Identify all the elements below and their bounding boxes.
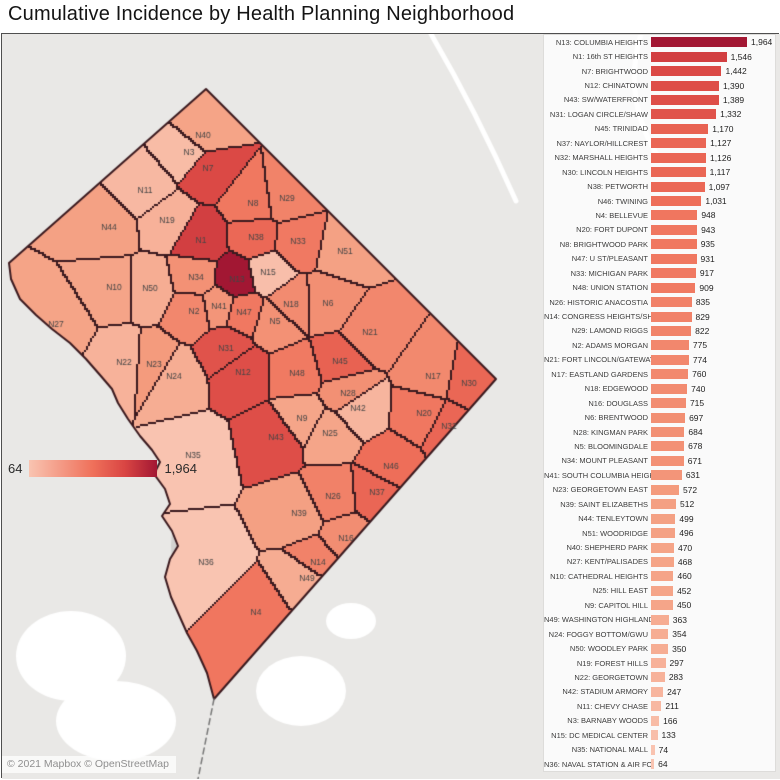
bar[interactable] (651, 759, 654, 769)
bar-row[interactable]: N29: LAMOND RIGGS822 (544, 324, 775, 338)
bar[interactable] (651, 37, 747, 47)
bar[interactable] (651, 413, 685, 423)
bar[interactable] (651, 167, 706, 177)
bar-value: 512 (680, 499, 694, 509)
bar-row[interactable]: N20: FORT DUPONT943 (544, 223, 775, 237)
bar-value: 671 (688, 456, 702, 466)
bar-label: N6: BRENTWOOD (544, 413, 651, 422)
bar[interactable] (651, 95, 719, 105)
bar-value: 684 (688, 427, 702, 437)
bar-label: N15: DC MEDICAL CENTER (544, 731, 651, 740)
bar[interactable] (651, 730, 658, 740)
bar-label: N20: FORT DUPONT (544, 225, 651, 234)
bar-label: N49: WASHINGTON HIGHLANDS (544, 615, 651, 624)
bar[interactable] (651, 369, 688, 379)
bar-row[interactable]: N30: LINCOLN HEIGHTS1,117 (544, 165, 775, 179)
bar[interactable] (651, 441, 684, 451)
bar-value: 948 (701, 210, 715, 220)
bar-row[interactable]: N13: COLUMBIA HEIGHTS1,964 (544, 35, 775, 49)
bar[interactable] (651, 470, 682, 480)
bar-value: 1,546 (731, 52, 752, 62)
bar[interactable] (651, 456, 684, 466)
bar-label: N3: BARNABY WOODS (544, 716, 651, 725)
bar-value: 354 (672, 629, 686, 639)
bar[interactable] (651, 629, 668, 639)
bar[interactable] (651, 239, 697, 249)
bar-label: N11: CHEVY CHASE (544, 702, 651, 711)
bar[interactable] (651, 586, 673, 596)
bar-value: 943 (701, 225, 715, 235)
bar-row[interactable]: N48: UNION STATION909 (544, 280, 775, 294)
bar-value: 909 (699, 283, 713, 293)
bar-value: 1,332 (720, 109, 741, 119)
bar-label: N2: ADAMS MORGAN (544, 341, 651, 350)
bar-label: N22: GEORGETOWN (544, 673, 651, 682)
legend-min-label: 64 (8, 461, 22, 476)
bar-row[interactable]: N6: BRENTWOOD697 (544, 410, 775, 424)
bar-label: N4: BELLEVUE (544, 211, 651, 220)
bar-value: 931 (701, 254, 715, 264)
bar-row[interactable]: N32: MARSHALL HEIGHTS1,126 (544, 151, 775, 165)
bar-row[interactable]: N14: CONGRESS HEIGHTS/SHI..829 (544, 309, 775, 323)
bar-label: N45: TRINIDAD (544, 124, 651, 133)
bar-label: N32: MARSHALL HEIGHTS (544, 153, 651, 162)
bar-label: N12: CHINATOWN (544, 81, 651, 90)
bar-label: N35: NATIONAL MALL (544, 745, 651, 754)
bar-row[interactable]: N40: SHEPHERD PARK470 (544, 540, 775, 554)
bar[interactable] (651, 427, 684, 437)
bar-row[interactable]: N37: NAYLOR/HILLCREST1,127 (544, 136, 775, 150)
page-title: Cumulative Incidence by Health Planning … (8, 3, 514, 26)
bar[interactable] (651, 283, 695, 293)
bar-label: N39: SAINT ELIZABETHS (544, 500, 651, 509)
bar-row[interactable]: N5: BLOOMINGDALE678 (544, 439, 775, 453)
bar-row[interactable]: N4: BELLEVUE948 (544, 208, 775, 222)
bar-value: 822 (695, 326, 709, 336)
bar-label: N26: HISTORIC ANACOSTIA (544, 298, 651, 307)
bar-row[interactable]: N39: SAINT ELIZABETHS512 (544, 497, 775, 511)
bar-label: N38: PETWORTH (544, 182, 651, 191)
bar-row[interactable]: N15: DC MEDICAL CENTER133 (544, 728, 775, 742)
bar[interactable] (651, 66, 721, 76)
bar-value: 1,031 (705, 196, 726, 206)
bar-row[interactable]: N47: U ST/PLEASANT931 (544, 252, 775, 266)
bar-label: N46: TWINING (544, 197, 651, 206)
bar[interactable] (651, 485, 679, 495)
bar-value: 211 (665, 701, 679, 711)
bar-row[interactable]: N9: CAPITOL HILL450 (544, 598, 775, 612)
bar-row[interactable]: N22: GEORGETOWN283 (544, 670, 775, 684)
bar-value: 917 (700, 268, 714, 278)
bar[interactable] (651, 326, 691, 336)
bar-label: N28: KINGMAN PARK (544, 428, 651, 437)
bar-row[interactable]: N24: FOGGY BOTTOM/GWU354 (544, 627, 775, 641)
bar-row[interactable]: N19: FOREST HILLS297 (544, 656, 775, 670)
bar[interactable] (651, 268, 696, 278)
bar-row[interactable]: N23: GEORGETOWN EAST572 (544, 483, 775, 497)
bar-value: 166 (663, 716, 677, 726)
bar-value: 1,442 (725, 66, 746, 76)
bar-row[interactable]: N2: ADAMS MORGAN775 (544, 338, 775, 352)
bar-label: N34: MOUNT PLEASANT (544, 456, 651, 465)
bar-value: 363 (673, 615, 687, 625)
bar[interactable] (651, 716, 659, 726)
bar-row[interactable]: N36: NAVAL STATION & AIR FO..64 (544, 757, 775, 771)
bar-label: N1: 16th ST HEIGHTS (544, 52, 651, 61)
bar-row[interactable]: N12: CHINATOWN1,390 (544, 78, 775, 92)
map-attribution: © 2021 Mapbox © OpenStreetMap (2, 756, 176, 773)
bar-label: N40: SHEPHERD PARK (544, 543, 651, 552)
bar-chart-panel: N13: COLUMBIA HEIGHTS1,964N1: 16th ST HE… (543, 34, 776, 772)
bar-row[interactable]: N45: TRINIDAD1,170 (544, 122, 775, 136)
bar-value: 468 (678, 557, 692, 567)
bar-value: 64 (658, 759, 667, 769)
bar[interactable] (651, 312, 692, 322)
bar[interactable] (651, 658, 666, 668)
bar[interactable] (651, 672, 665, 682)
bar-value: 499 (679, 514, 693, 524)
bar-value: 829 (696, 312, 710, 322)
bar-value: 470 (678, 543, 692, 553)
bar-row[interactable]: N8: BRIGHTWOOD PARK935 (544, 237, 775, 251)
bar-label: N48: UNION STATION (544, 283, 651, 292)
bar-label: N13: COLUMBIA HEIGHTS (544, 38, 651, 47)
bar-label: N7: BRIGHTWOOD (544, 67, 651, 76)
bar[interactable] (651, 514, 675, 524)
bar-label: N8: BRIGHTWOOD PARK (544, 240, 651, 249)
bar-label: N10: CATHEDRAL HEIGHTS (544, 572, 651, 581)
bar[interactable] (651, 384, 687, 394)
bar-value: 835 (696, 297, 710, 307)
bar-row[interactable]: N7: BRIGHTWOOD1,442 (544, 64, 775, 78)
bar[interactable] (651, 615, 669, 625)
bar-row[interactable]: N35: NATIONAL MALL74 (544, 742, 775, 756)
bar[interactable] (651, 297, 692, 307)
bar-value: 297 (670, 658, 684, 668)
bar-value: 133 (662, 730, 676, 740)
legend-gradient (29, 460, 157, 477)
bar-label: N44: TENLEYTOWN (544, 514, 651, 523)
bar[interactable] (651, 81, 719, 91)
bar-row[interactable]: N50: WOODLEY PARK350 (544, 641, 775, 655)
bar-label: N23: GEORGETOWN EAST (544, 485, 651, 494)
bar-label: N9: CAPITOL HILL (544, 601, 651, 610)
bar[interactable] (651, 210, 697, 220)
bar-row[interactable]: N49: WASHINGTON HIGHLANDS363 (544, 613, 775, 627)
bar-row[interactable]: N10: CATHEDRAL HEIGHTS460 (544, 569, 775, 583)
bar-value: 283 (669, 672, 683, 682)
bar[interactable] (651, 745, 655, 755)
bar-label: N21: FORT LINCOLN/GATEWAY (544, 355, 651, 364)
bar-row[interactable]: N26: HISTORIC ANACOSTIA835 (544, 295, 775, 309)
bar-label: N29: LAMOND RIGGS (544, 326, 651, 335)
bar[interactable] (651, 182, 705, 192)
bar-row[interactable]: N18: EDGEWOOD740 (544, 382, 775, 396)
bar[interactable] (651, 340, 689, 350)
bar-row[interactable]: N28: KINGMAN PARK684 (544, 425, 775, 439)
bar-label: N18: EDGEWOOD (544, 384, 651, 393)
bar-row[interactable]: N21: FORT LINCOLN/GATEWAY774 (544, 353, 775, 367)
bar-value: 715 (690, 398, 704, 408)
bar-value: 678 (688, 441, 702, 451)
bar-value: 452 (677, 586, 691, 596)
bar-value: 774 (693, 355, 707, 365)
bar-value: 1,117 (710, 167, 731, 177)
bar-row[interactable]: N25: HILL EAST452 (544, 584, 775, 598)
bar[interactable] (651, 109, 716, 119)
bar-value: 350 (672, 644, 686, 654)
bar-value: 450 (677, 600, 691, 610)
bar[interactable] (651, 52, 727, 62)
bar[interactable] (651, 687, 663, 697)
bar-row[interactable]: N11: CHEVY CHASE211 (544, 699, 775, 713)
bar-row[interactable]: N38: PETWORTH1,097 (544, 179, 775, 193)
bar-label: N41: SOUTH COLUMBIA HEIGHT.. (544, 471, 651, 480)
bar[interactable] (651, 124, 708, 134)
bar[interactable] (651, 571, 673, 581)
bar-value: 1,170 (712, 124, 733, 134)
bar-value: 935 (701, 239, 715, 249)
bar[interactable] (651, 701, 661, 711)
bar[interactable] (651, 225, 697, 235)
bar-label: N24: FOGGY BOTTOM/GWU (544, 630, 651, 639)
bar-label: N31: LOGAN CIRCLE/SHAW (544, 110, 651, 119)
bar-row[interactable]: N51: WOODRIDGE496 (544, 526, 775, 540)
bar-label: N50: WOODLEY PARK (544, 644, 651, 653)
legend-max-label: 1,964 (164, 461, 197, 476)
bar-label: N25: HILL EAST (544, 586, 651, 595)
bar[interactable] (651, 398, 686, 408)
bar-value: 1,127 (710, 138, 731, 148)
bar-label: N51: WOODRIDGE (544, 529, 651, 538)
bar-value: 572 (683, 485, 697, 495)
bar-value: 1,389 (723, 95, 744, 105)
bar-row[interactable]: N1: 16th ST HEIGHTS1,546 (544, 49, 775, 63)
bar-label: N43: SW/WATERFRONT (544, 95, 651, 104)
bar-label: N37: NAYLOR/HILLCREST (544, 139, 651, 148)
bar[interactable] (651, 254, 697, 264)
bar-label: N33: MICHIGAN PARK (544, 269, 651, 278)
bar-row[interactable]: N44: TENLEYTOWN499 (544, 511, 775, 525)
bar-row[interactable]: N42: STADIUM ARMORY247 (544, 685, 775, 699)
bar-label: N16: DOUGLASS (544, 399, 651, 408)
bar-row[interactable]: N3: BARNABY WOODS166 (544, 714, 775, 728)
bar-row[interactable]: N33: MICHIGAN PARK917 (544, 266, 775, 280)
bar-value: 1,964 (751, 37, 772, 47)
bar-value: 775 (693, 340, 707, 350)
bar-label: N42: STADIUM ARMORY (544, 687, 651, 696)
bar[interactable] (651, 600, 673, 610)
bar-value: 1,390 (723, 81, 744, 91)
bar-row[interactable]: N27: KENT/PALISADES468 (544, 555, 775, 569)
bar-row[interactable]: N17: EASTLAND GARDENS760 (544, 367, 775, 381)
bar[interactable] (651, 196, 701, 206)
bar-value: 760 (692, 369, 706, 379)
bar[interactable] (651, 528, 675, 538)
bar[interactable] (651, 499, 676, 509)
bar-row[interactable]: N43: SW/WATERFRONT1,389 (544, 93, 775, 107)
bar[interactable] (651, 355, 689, 365)
bar-row[interactable]: N46: TWINING1,031 (544, 194, 775, 208)
bar-value: 1,097 (709, 182, 730, 192)
bar-label: N17: EASTLAND GARDENS (544, 370, 651, 379)
bar-value: 496 (679, 528, 693, 538)
bar-label: N5: BLOOMINGDALE (544, 442, 651, 451)
bar-value: 460 (677, 571, 691, 581)
bar-value: 74 (659, 745, 668, 755)
color-legend: 64 1,964 (8, 460, 197, 477)
bar-value: 740 (691, 384, 705, 394)
bar-value: 247 (667, 687, 681, 697)
bar-value: 697 (689, 413, 703, 423)
bar-label: N14: CONGRESS HEIGHTS/SHI.. (544, 312, 651, 321)
bar-row[interactable]: N41: SOUTH COLUMBIA HEIGHT..631 (544, 468, 775, 482)
bar-row[interactable]: N16: DOUGLASS715 (544, 396, 775, 410)
bar-label: N19: FOREST HILLS (544, 659, 651, 668)
bar[interactable] (651, 138, 706, 148)
bar-value: 631 (686, 470, 700, 480)
bar[interactable] (651, 557, 674, 567)
bar[interactable] (651, 153, 706, 163)
bar[interactable] (651, 644, 668, 654)
bar-label: N30: LINCOLN HEIGHTS (544, 168, 651, 177)
bar-row[interactable]: N31: LOGAN CIRCLE/SHAW1,332 (544, 107, 775, 121)
bar-value: 1,126 (710, 153, 731, 163)
bar-row[interactable]: N34: MOUNT PLEASANT671 (544, 454, 775, 468)
bar-label: N36: NAVAL STATION & AIR FO.. (544, 760, 651, 769)
bar-label: N47: U ST/PLEASANT (544, 254, 651, 263)
bar-label: N27: KENT/PALISADES (544, 557, 651, 566)
bar[interactable] (651, 543, 674, 553)
